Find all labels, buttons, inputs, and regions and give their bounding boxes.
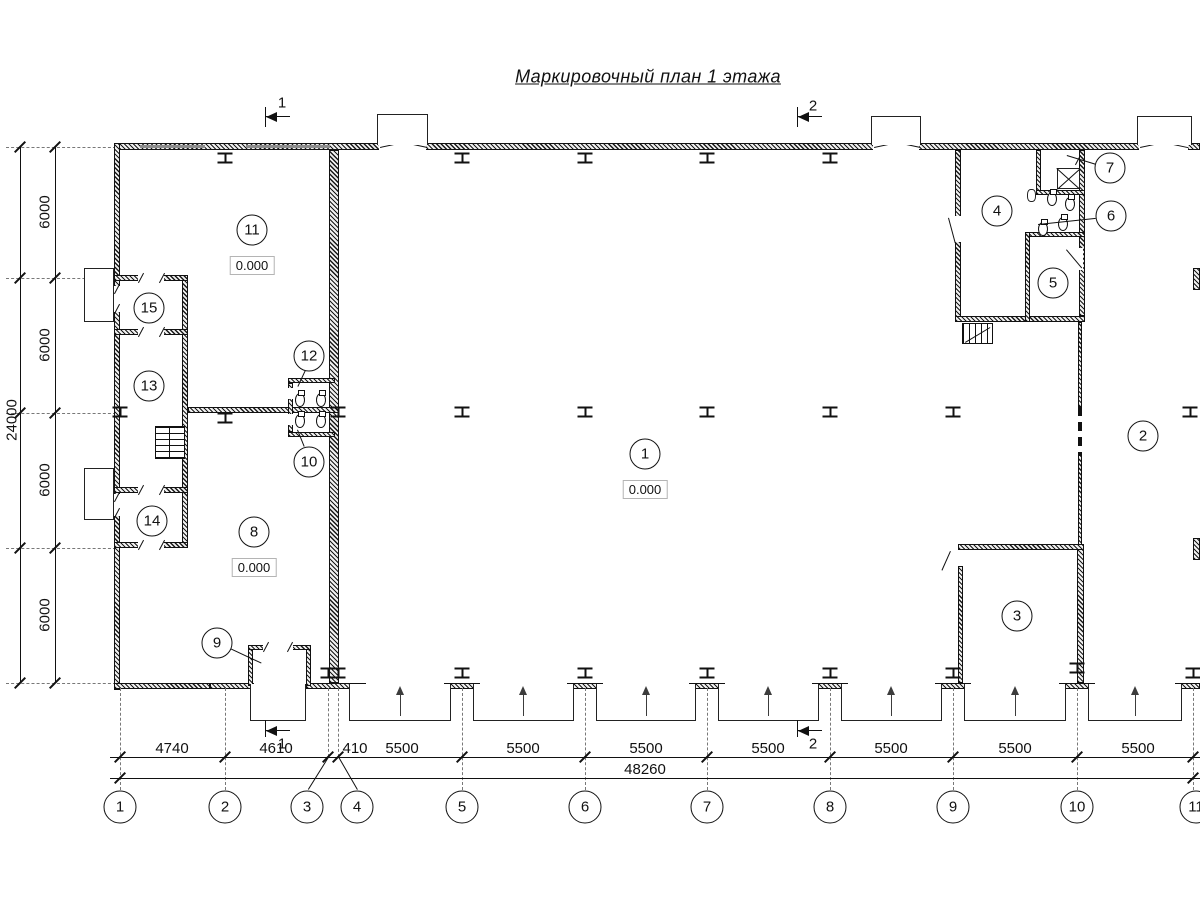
dim-text-bottom: 5500 [506,740,539,757]
room-marker-5: 5 [1038,268,1069,299]
room-marker-2: 2 [1128,421,1159,452]
elevation-label: 0.000 [623,480,668,499]
grid-centerline [328,688,329,757]
ramp-arrow [523,693,524,716]
column-symbol [700,407,715,418]
column-symbol [578,153,593,164]
wall-san-bottom [955,316,1085,322]
wall-axis10-opening [1078,407,1082,455]
porch [84,268,114,322]
dim-text-bottom: 5500 [874,740,907,757]
grid-bubble-10: 10 [1061,791,1094,824]
grid-bubble-6: 6 [569,791,602,824]
ramp-arrow-head [519,686,527,695]
section-arrow-icon [798,726,809,736]
grid-bubble-4: 4 [341,791,374,824]
wall-room7-bottom [1036,190,1085,195]
ramp-arrow [646,693,647,716]
wall-stub [1193,538,1200,560]
column-symbol [331,407,346,418]
porch [250,684,306,721]
section-label: 1 [278,95,286,112]
window-band [140,145,205,148]
dim-line-left-segments [55,147,56,683]
dim-text-bottom: 5500 [629,740,662,757]
door-opening [955,216,961,242]
column-symbol [700,668,715,679]
dim-text-left: 6000 [37,463,54,496]
stair-divider [169,426,170,459]
door-swing [941,551,950,571]
column-symbol [578,668,593,679]
grid-centerline [830,688,831,790]
room-marker-13: 13 [134,371,165,402]
section-arrow-icon [798,112,809,122]
dim-text-left: 6000 [37,195,54,228]
column-symbol [218,413,233,424]
floor-plan-canvas: Маркировочный план 1 этажа 6000 6000 600… [0,0,1200,900]
column-symbol [823,407,838,418]
section-label: 2 [809,98,817,115]
toilet-icon [316,414,326,428]
room-marker-6: 6 [1096,201,1127,232]
wall-axis10 [1078,455,1082,547]
column-symbol [331,668,346,679]
door-opening [288,388,293,399]
ramp-arrow [1015,693,1016,716]
porch [84,468,114,520]
column-symbol [1070,663,1085,674]
wall-corridor [188,407,339,413]
dim-line-bottom-total [110,778,1200,779]
column-symbol [218,153,233,164]
elevation-label: 0.000 [230,256,275,275]
ramp-arrow [891,693,892,716]
grid-centerline [1077,688,1078,790]
room-marker-15: 15 [134,293,165,324]
wall-wc-bottom [288,432,335,437]
grid-bubble-7: 7 [691,791,724,824]
drawing-title: Маркировочный план 1 этажа [515,67,781,88]
grid-bubble-3: 3 [291,791,324,824]
column-symbol [455,407,470,418]
toilet-icon [1047,192,1057,206]
room-marker-14: 14 [137,506,168,537]
section-arrow-icon [266,726,277,736]
wall-vestibule-right [306,645,311,686]
room-marker-4: 4 [982,196,1013,227]
wall-vestibule-left [248,645,253,686]
row-centerline [6,413,116,414]
ramp-arrow-head [642,686,650,695]
dim-text-bottom: 5500 [1121,740,1154,757]
dim-text-bottom-total: 48260 [624,761,666,778]
grid-leader [308,757,329,790]
grid-bubble-8: 8 [814,791,847,824]
dim-text-bottom: 5500 [998,740,1031,757]
room-marker-8: 8 [239,517,270,548]
row-centerline [6,548,116,549]
ramp-arrow-head [1131,686,1139,695]
wall-stair-block [182,278,188,548]
column-symbol [578,407,593,418]
room-marker-3: 3 [1002,601,1033,632]
dim-text-bottom: 410 [342,740,367,757]
dim-text-bottom: 4740 [155,740,188,757]
canopy [1137,116,1192,145]
wall-room7-left [1036,150,1041,195]
canopy [377,114,428,145]
grid-bubble-9: 9 [937,791,970,824]
dim-text-bottom: 5500 [751,740,784,757]
ramp-arrow-head [764,686,772,695]
grid-centerline [338,688,339,757]
grid-centerline [225,688,226,790]
column-symbol [946,407,961,418]
dim-text-left: 6000 [37,598,54,631]
grid-leader [338,757,358,790]
row-centerline [6,147,116,148]
ramp-arrow [1135,693,1136,716]
dim-line-bottom-segments [110,757,1200,758]
wall-bottom [114,683,210,689]
wall-axis10 [1078,322,1082,407]
canopy [871,116,921,145]
ramp-arrow [768,693,769,716]
window-band [246,145,330,148]
section-label: 2 [809,736,817,753]
grid-centerline [585,688,586,790]
wall-stub [1193,268,1200,290]
wall-room3-left [958,566,963,683]
column-symbol [1186,668,1200,679]
column-symbol [823,153,838,164]
wall-room3-top [958,544,1084,550]
column-symbol [823,668,838,679]
column-symbol [455,668,470,679]
room-marker-9: 9 [202,628,233,659]
grid-centerline [707,688,708,790]
room-marker-11: 11 [237,215,268,246]
toilet-icon [316,393,326,407]
column-symbol [946,668,961,679]
dim-text-bottom: 4610 [259,740,292,757]
grid-bubble-1: 1 [104,791,137,824]
column-symbol [455,153,470,164]
sink-icon [1027,189,1036,202]
grid-centerline [462,688,463,790]
grid-centerline [953,688,954,790]
ramp-arrow-head [887,686,895,695]
toilet-icon [295,393,305,407]
room-marker-1: 1 [630,439,661,470]
toilet-icon [1065,197,1075,211]
elevation-label: 0.000 [232,558,277,577]
column-symbol [113,407,128,418]
wall-wc-top [288,378,335,383]
toilet-icon [1058,217,1068,231]
wall-room6-bottom [1025,232,1085,237]
ramp-arrow-head [1011,686,1019,695]
column-symbol [700,153,715,164]
door-opening [288,414,293,425]
dim-text-left: 6000 [37,328,54,361]
toilet-icon [295,414,305,428]
grid-bubble-2: 2 [209,791,242,824]
grid-bubble-11: 11 [1180,791,1200,824]
dim-text-left-total: 24000 [4,399,21,441]
section-arrow-icon [266,112,277,122]
room-marker-12: 12 [294,341,325,372]
room-marker-10: 10 [294,447,325,478]
row-centerline [6,683,116,684]
column-symbol [1183,407,1198,418]
ramp-arrow-head [396,686,404,695]
ramp-arrow [400,693,401,716]
room-marker-7: 7 [1095,153,1126,184]
dim-text-bottom: 5500 [385,740,418,757]
wall-room5-left [1025,232,1030,322]
grid-bubble-5: 5 [446,791,479,824]
stair [155,426,185,459]
